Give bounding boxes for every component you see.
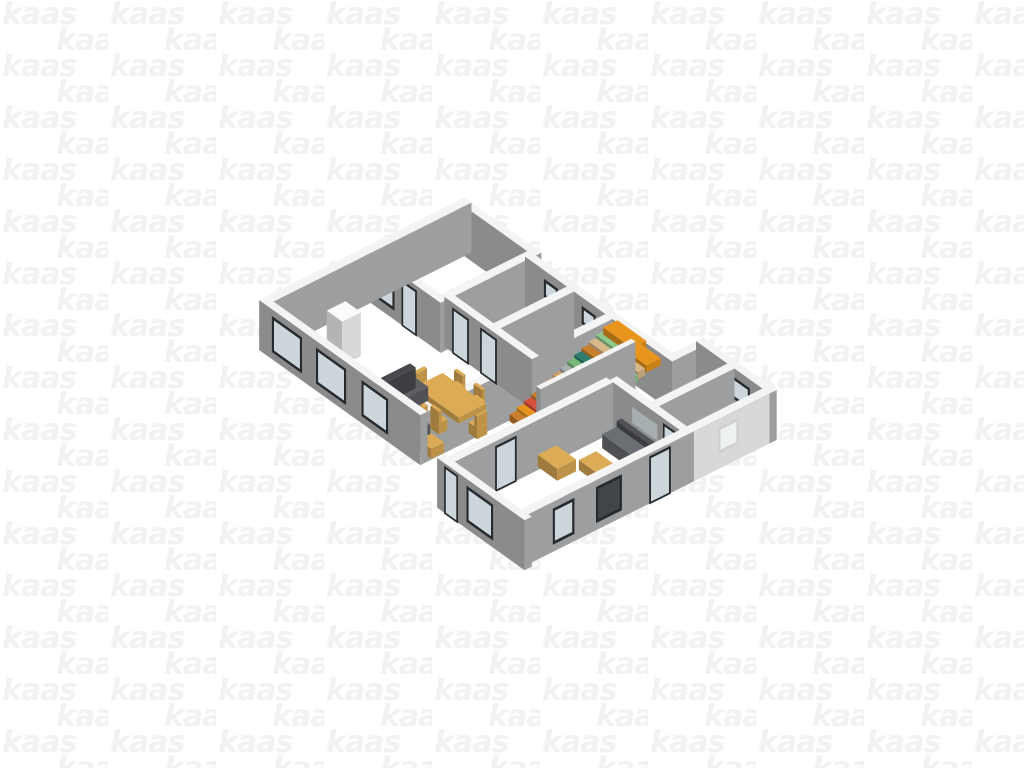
floorplan-3d-view: kaas kaas — [0, 0, 1024, 768]
page: kaas kaas — [0, 0, 1024, 768]
glass-door — [444, 466, 458, 524]
